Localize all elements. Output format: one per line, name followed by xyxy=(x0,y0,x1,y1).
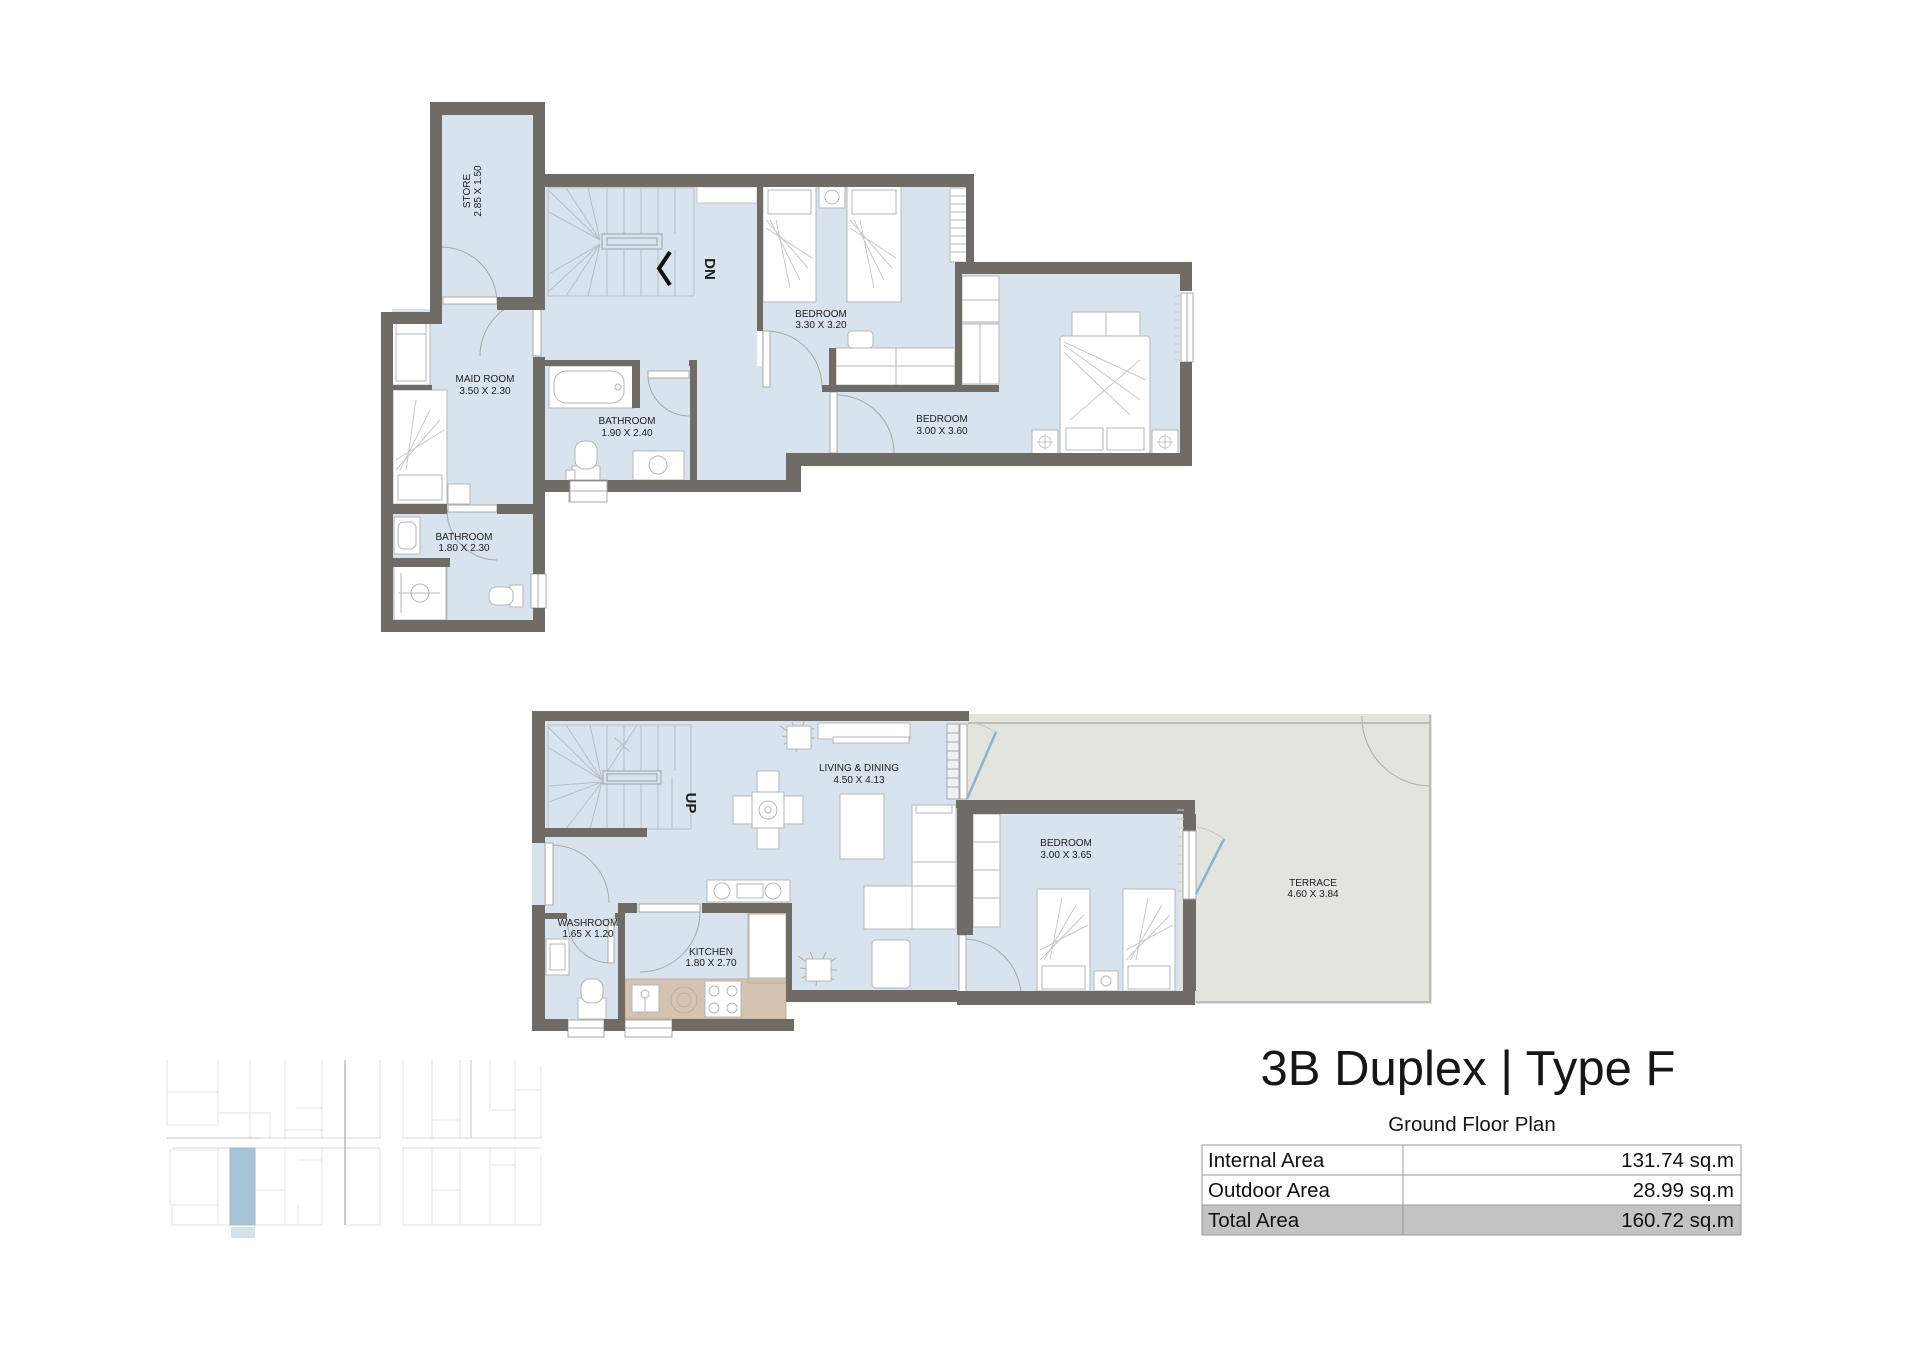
svg-text:TERRACE: TERRACE xyxy=(1289,878,1337,889)
svg-text:3.50 X 2.30: 3.50 X 2.30 xyxy=(459,386,511,397)
svg-text:BEDROOM: BEDROOM xyxy=(795,309,847,320)
svg-text:1.90 X 2.40: 1.90 X 2.40 xyxy=(601,428,653,439)
svg-text:131.74 sq.m: 131.74 sq.m xyxy=(1621,1149,1734,1172)
svg-text:BATHROOM: BATHROOM xyxy=(435,532,492,543)
svg-text:BATHROOM: BATHROOM xyxy=(598,416,655,427)
svg-text:2.85 X 1.50: 2.85 X 1.50 xyxy=(473,165,484,217)
svg-text:BEDROOM: BEDROOM xyxy=(916,414,968,425)
svg-text:UP: UP xyxy=(682,793,699,814)
svg-text:1.80 X 2.70: 1.80 X 2.70 xyxy=(685,958,737,969)
svg-text:3B Duplex | Type F: 3B Duplex | Type F xyxy=(1261,1042,1676,1096)
svg-text:MAID ROOM: MAID ROOM xyxy=(456,374,515,385)
svg-text:LIVING & DINING: LIVING & DINING xyxy=(819,763,899,774)
svg-text:STORE: STORE xyxy=(462,174,473,209)
svg-text:160.72 sq.m: 160.72 sq.m xyxy=(1621,1209,1734,1232)
svg-text:1.65 X 1.20: 1.65 X 1.20 xyxy=(562,929,614,940)
svg-text:1.80 X 2.30: 1.80 X 2.30 xyxy=(438,543,490,554)
svg-text:4.60 X 3.84: 4.60 X 3.84 xyxy=(1287,889,1339,900)
svg-text:Internal Area: Internal Area xyxy=(1208,1149,1325,1172)
svg-text:4.50 X 4.13: 4.50 X 4.13 xyxy=(833,775,885,786)
svg-text:BEDROOM: BEDROOM xyxy=(1040,838,1092,849)
svg-text:KITCHEN: KITCHEN xyxy=(689,947,733,958)
svg-text:28.99 sq.m: 28.99 sq.m xyxy=(1633,1179,1734,1202)
svg-text:3.30 X 3.20: 3.30 X 3.20 xyxy=(795,320,847,331)
svg-text:Total Area: Total Area xyxy=(1208,1209,1300,1232)
svg-text:3.00 X 3.60: 3.00 X 3.60 xyxy=(916,426,968,437)
svg-text:DN: DN xyxy=(701,258,718,280)
svg-text:Ground Floor Plan: Ground Floor Plan xyxy=(1388,1113,1556,1136)
svg-text:WASHROOM: WASHROOM xyxy=(558,918,619,929)
svg-text:3.00 X 3.65: 3.00 X 3.65 xyxy=(1040,850,1092,861)
svg-text:Outdoor Area: Outdoor Area xyxy=(1208,1179,1331,1202)
